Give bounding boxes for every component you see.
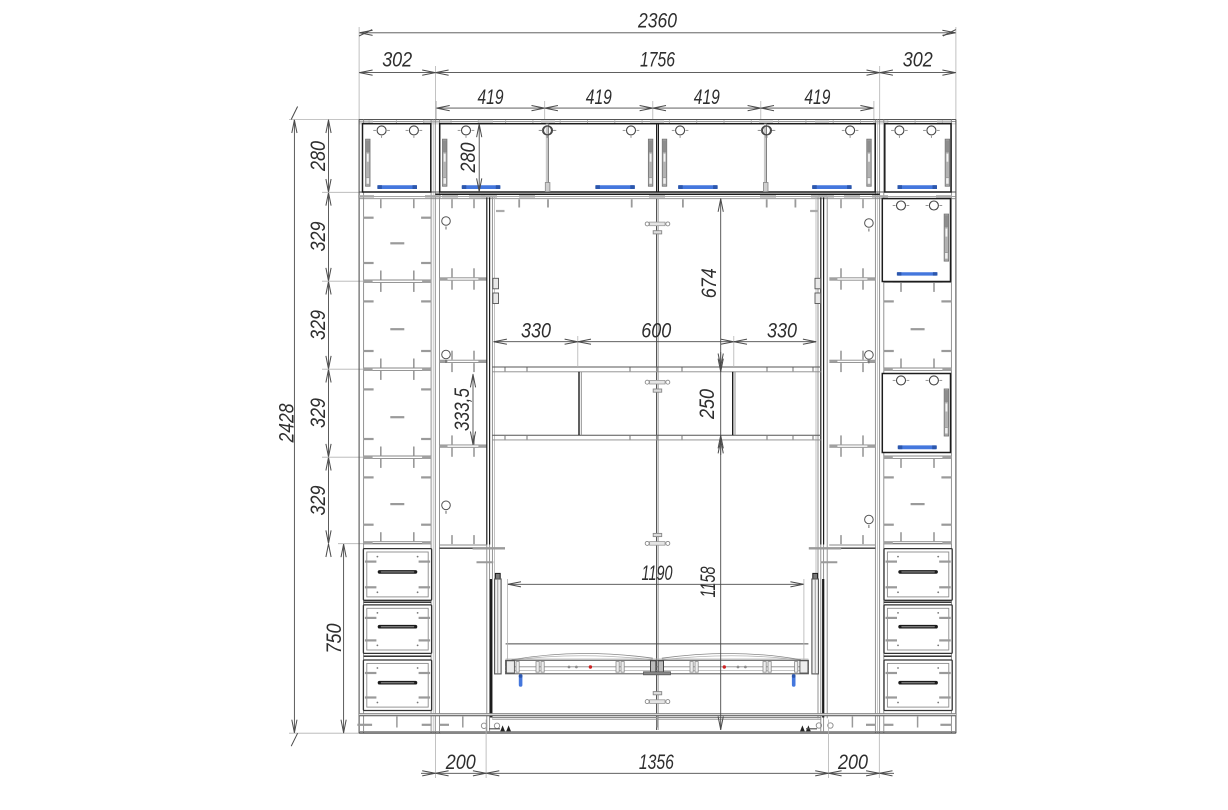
svg-text:1190: 1190	[642, 562, 673, 585]
svg-text:280: 280	[457, 142, 480, 173]
svg-text:419: 419	[694, 86, 720, 109]
svg-text:329: 329	[307, 485, 330, 515]
svg-text:329: 329	[307, 221, 330, 251]
svg-text:419: 419	[586, 86, 612, 109]
svg-text:329: 329	[307, 310, 330, 340]
svg-text:2360: 2360	[637, 10, 677, 33]
svg-text:1356: 1356	[639, 751, 674, 774]
svg-text:600: 600	[641, 320, 671, 343]
svg-text:280: 280	[307, 141, 330, 172]
svg-text:250: 250	[696, 389, 719, 420]
svg-text:302: 302	[382, 49, 412, 72]
svg-text:302: 302	[903, 49, 933, 72]
svg-text:674: 674	[698, 268, 721, 298]
svg-text:333,5: 333,5	[451, 388, 474, 431]
svg-text:330: 330	[521, 320, 551, 343]
svg-text:419: 419	[478, 86, 504, 109]
svg-text:329: 329	[307, 398, 330, 428]
svg-text:200: 200	[837, 751, 868, 774]
svg-text:200: 200	[445, 751, 476, 774]
svg-text:330: 330	[767, 320, 797, 343]
svg-text:1756: 1756	[640, 49, 675, 72]
svg-text:419: 419	[804, 86, 830, 109]
svg-text:750: 750	[323, 623, 346, 653]
svg-text:1158: 1158	[697, 566, 720, 597]
svg-text:2428: 2428	[275, 403, 298, 443]
